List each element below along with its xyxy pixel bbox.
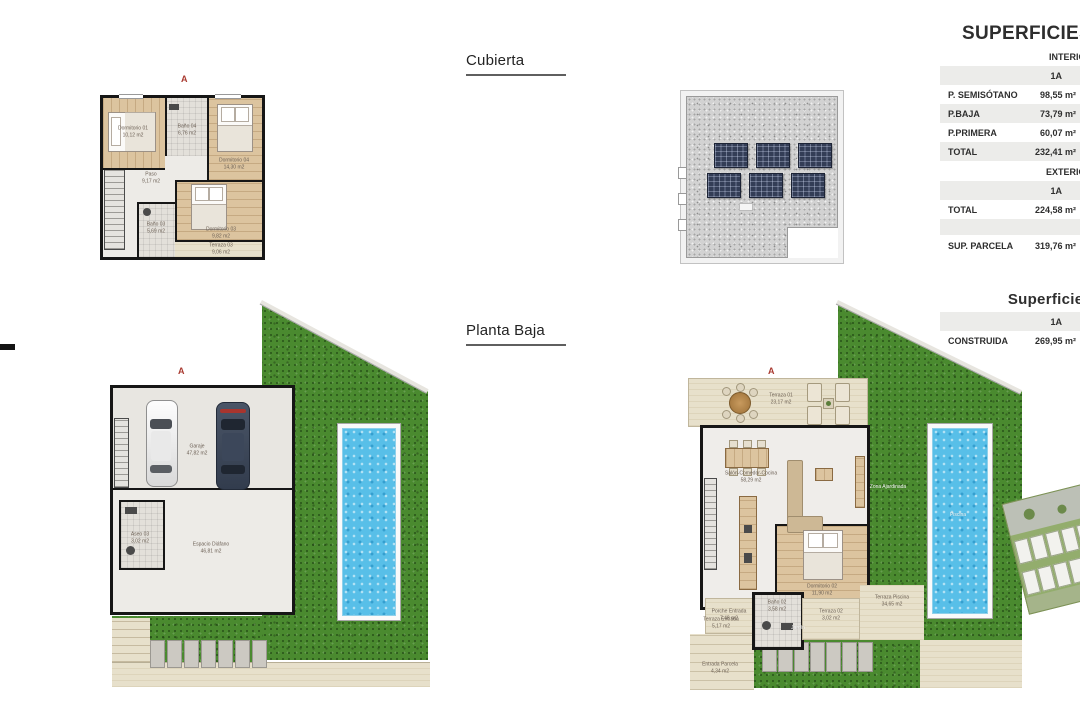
room-bano-02: Baño 023,58 m2 <box>752 592 804 650</box>
stepping-stone <box>150 640 165 668</box>
room-label-dormitorio-02: Dormitorio 0211,90 m2 <box>807 584 837 597</box>
chair-icon <box>722 387 731 396</box>
surface-table: SUPERFICIES INTERIOR 1A P. SEMISÓTANO 98… <box>940 22 1080 257</box>
section-title-planta-baja: Planta Baja <box>466 322 566 346</box>
plan-marker-a: A <box>181 74 188 84</box>
kitchen-island-icon <box>739 496 757 590</box>
table-row: P. SEMISÓTANO 98,55 m² <box>940 85 1080 104</box>
roof-plan <box>686 96 838 258</box>
table-row: 1A <box>940 312 1080 331</box>
roof-edge-detail <box>678 193 687 205</box>
room-terraza-piscina: Terraza Piscina34,65 m2 <box>860 585 924 640</box>
room-label-bano-04: Baño 046,76 m2 <box>178 124 197 137</box>
bed-icon <box>191 184 227 230</box>
wall <box>165 98 167 156</box>
room-label-salon: Salón-Comedor-Cocina58,29 m2 <box>725 471 777 484</box>
variant-label: 1A <box>1050 71 1062 81</box>
stairs-icon <box>114 418 129 488</box>
lounge-chair-icon <box>807 406 822 425</box>
chair-icon <box>736 383 745 392</box>
table-row: TOTAL 232,41 m² <box>940 142 1080 161</box>
stepping-stone <box>252 640 267 668</box>
terrace-area <box>920 640 1022 688</box>
lounge-chair-icon <box>807 383 822 402</box>
table-spacer-row <box>940 219 1080 235</box>
table-row: CONSTRUIDA 269,95 m² <box>940 331 1080 350</box>
built-surface-table: Superficies 1A CONSTRUIDA 269,95 m² <box>940 290 1080 350</box>
solar-panel-icon <box>707 173 741 198</box>
table-row: SUP. PARCELA 319,76 m² <box>940 235 1080 257</box>
room-label-bano-03: Baño 035,69 m2 <box>147 222 166 235</box>
stepping-stone <box>826 642 841 672</box>
built-table-title: Superficies <box>940 290 1080 312</box>
stepping-stone <box>167 640 182 668</box>
room-label-bano-02: Baño 023,58 m2 <box>768 600 787 613</box>
room-label-paso: Paso9,17 m2 <box>142 172 160 185</box>
window-icon <box>119 94 143 99</box>
car-icon <box>216 402 250 490</box>
room-terraza-02: Terraza 023,02 m2 <box>802 598 860 640</box>
variant-label: 1A <box>1050 317 1062 327</box>
table-row: P.PRIMERA 60,07 m² <box>940 123 1080 142</box>
cropped-plan-fragment <box>0 344 15 350</box>
solar-panel-icon <box>714 143 748 168</box>
stairs-icon <box>104 168 125 250</box>
coffee-table-icon <box>815 468 833 481</box>
tv-bench-icon <box>855 456 865 508</box>
plan-marker-a: A <box>768 366 775 376</box>
table-row: 1A <box>940 181 1080 200</box>
room-label-dormitorio-04: Dormitorio 0414,30 m2 <box>219 158 249 171</box>
garden-label: Jardín <box>791 625 805 632</box>
room-label-dormitorio-03: Dormitorio 039,82 m2 <box>206 227 236 240</box>
wall <box>175 180 177 240</box>
exterior-header: EXTERIOR <box>940 161 1080 181</box>
dining-table-icon <box>725 448 769 468</box>
stairs-icon <box>704 478 717 570</box>
chair-icon <box>722 410 731 419</box>
wall <box>207 98 209 180</box>
stepping-stone <box>218 640 233 668</box>
roof-notch <box>787 227 838 258</box>
room-label-aseo-03: Aseo 033,02 m2 <box>131 532 149 545</box>
pool <box>338 424 400 620</box>
exterior-steps <box>112 618 150 662</box>
bath-fixture-icon <box>143 208 151 216</box>
roof-hatch-icon <box>739 203 753 211</box>
wall <box>137 202 177 204</box>
bed-icon <box>803 530 843 580</box>
plan-sheet: Cubierta Planta Baja SUPERFICIES INTERIO… <box>0 0 1080 720</box>
basement-plan: Garaje47,82 m2 Espacio Diáfano46,81 m2 A… <box>110 385 295 615</box>
wall <box>137 202 139 257</box>
window-icon <box>215 94 241 99</box>
pool-label: Piscina <box>950 512 966 519</box>
side-table-icon <box>823 398 834 409</box>
wall <box>103 168 165 170</box>
section-title-cubierta: Cubierta <box>466 52 566 76</box>
variant-label: 1A <box>1050 186 1062 196</box>
stepping-stone <box>810 642 825 672</box>
interior-header: INTERIOR <box>940 48 1080 66</box>
room-label-terraza-piscina: Terraza Piscina34,65 m2 <box>875 595 909 608</box>
stepping-stone <box>235 640 250 668</box>
solar-panel-icon <box>798 143 832 168</box>
entrance-walkway: Entrada Parcela4,34 m2 <box>690 634 754 690</box>
wall <box>113 488 292 490</box>
room-terraza-01: Terraza 0123,17 m2 <box>688 378 868 427</box>
room-label-terraza-02: Terraza 023,02 m2 <box>819 609 843 622</box>
roof-edge-detail <box>678 219 687 231</box>
ground-floor-plan: Salón-Comedor-Cocina58,29 m2 Dormitorio … <box>700 425 870 610</box>
garden-label: Zona Ajardinada <box>870 484 906 491</box>
car-icon <box>146 400 178 487</box>
stepping-stone <box>184 640 199 668</box>
room-label-dormitorio-01: Dormitorio 0110,12 m2 <box>118 126 148 139</box>
room-label-espacio-diafano: Espacio Diáfano46,81 m2 <box>193 542 229 555</box>
stepping-stone <box>201 640 216 668</box>
room-label-terraza-01: Terraza 0123,17 m2 <box>769 393 793 406</box>
stepping-stone <box>842 642 857 672</box>
room-label-entrada-parcela: Entrada Parcela4,34 m2 <box>702 662 738 675</box>
stepping-stone <box>858 642 873 672</box>
surface-table-title: SUPERFICIES <box>940 22 1080 48</box>
room-label-garaje: Garaje47,82 m2 <box>187 444 208 457</box>
chair-icon <box>749 388 758 397</box>
bath-fixture-icon <box>169 104 179 110</box>
roof-edge-detail <box>678 167 687 179</box>
plan-marker-a: A <box>178 366 185 376</box>
chair-icon <box>736 414 745 423</box>
room-label-terraza-03: Terraza 039,06 m2 <box>209 243 233 256</box>
bed-icon <box>217 104 253 152</box>
first-floor-plan: Dormitorio 0110,12 m2 Baño 046,76 m2 Dor… <box>100 95 265 260</box>
table-row: TOTAL 224,58 m² <box>940 200 1080 219</box>
solar-panel-icon <box>749 173 783 198</box>
solar-panel-icon <box>756 143 790 168</box>
room-garaje <box>113 388 292 488</box>
pool <box>928 424 992 618</box>
table-row: P.BAJA 73,79 m² <box>940 104 1080 123</box>
room-label-terraza-entrada: Terraza Entrada5,17 m2 <box>703 617 739 630</box>
solar-panel-icon <box>791 173 825 198</box>
chair-icon <box>749 410 758 419</box>
lounge-chair-icon <box>835 406 850 425</box>
lounge-chair-icon <box>835 383 850 402</box>
table-row: 1A <box>940 66 1080 85</box>
wall <box>175 180 262 182</box>
outdoor-table-icon <box>729 392 751 414</box>
